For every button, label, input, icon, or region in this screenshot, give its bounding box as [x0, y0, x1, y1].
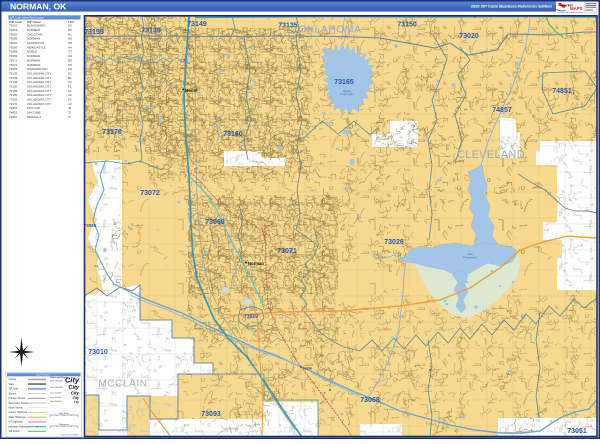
svg-text:Draper Lake: Draper Lake — [340, 93, 354, 96]
svg-text:73135: 73135 — [278, 23, 298, 30]
svg-text:73170: 73170 — [102, 129, 122, 136]
svg-text:Over 50,000: Over 50,000 — [50, 392, 62, 395]
svg-text:Moore: Moore — [185, 88, 198, 93]
svg-text:73020: 73020 — [9, 32, 18, 36]
svg-text:Over 25,000: Over 25,000 — [50, 396, 62, 399]
svg-text:State Highways: State Highways — [9, 416, 26, 419]
svg-text:73165: 73165 — [9, 98, 18, 102]
svg-text:73160: 73160 — [223, 131, 243, 138]
svg-text:C8: C8 — [68, 67, 72, 71]
svg-text:I2: I2 — [68, 115, 71, 119]
svg-text:73019: 73019 — [244, 314, 258, 320]
svg-text:A6: A6 — [68, 24, 72, 28]
svg-text:Streets: Streets — [9, 392, 17, 395]
svg-text:Toll Roads: Toll Roads — [9, 430, 21, 433]
svg-text:73026: 73026 — [384, 239, 404, 246]
svg-text:73068: 73068 — [360, 397, 380, 404]
svg-text:73159: 73159 — [84, 29, 104, 36]
svg-text:H1: H1 — [68, 32, 72, 36]
svg-text:NORMAN: NORMAN — [27, 58, 40, 62]
svg-text:Primary Streets: Primary Streets — [9, 397, 26, 400]
svg-text:Over 100,000: Over 100,000 — [50, 386, 63, 389]
svg-text:74851: 74851 — [9, 106, 18, 110]
svg-text:Copyright MarketMAPS: Copyright MarketMAPS — [60, 434, 80, 437]
svg-text:73149: 73149 — [187, 21, 207, 28]
svg-text:Norman: Norman — [248, 261, 264, 266]
svg-text:CLEVELAND: CLEVELAND — [457, 149, 525, 161]
svg-text:2020 ZIP Code Business Referen: 2020 ZIP Code Business Reference Edition — [471, 4, 553, 9]
svg-text:Over 250,000: Over 250,000 — [50, 380, 63, 383]
svg-text:73051: 73051 — [9, 41, 18, 45]
svg-text:74851: 74851 — [552, 88, 572, 95]
svg-text:Noble: Noble — [303, 366, 312, 370]
svg-text:F2: F2 — [68, 98, 72, 102]
svg-text:MAPS: MAPS — [570, 6, 583, 11]
svg-text:County: County — [9, 378, 17, 381]
svg-text:City: City — [73, 396, 81, 400]
svg-text:73165: 73165 — [334, 79, 354, 86]
svg-text:73051: 73051 — [567, 428, 587, 435]
svg-text:73010: 73010 — [88, 349, 108, 356]
svg-text:73093: 73093 — [9, 67, 18, 71]
svg-text:City: City — [71, 391, 80, 396]
svg-text:MCLOUD: MCLOUD — [27, 106, 41, 110]
svg-text:G7: G7 — [68, 50, 72, 54]
svg-text:73068: 73068 — [9, 50, 18, 54]
svg-text:NOBLE: NOBLE — [27, 50, 37, 54]
svg-text:ZIP Code Index/Grid Locator: ZIP Code Index/Grid Locator — [10, 16, 44, 20]
svg-text:73072: 73072 — [140, 190, 160, 197]
svg-text:73150: 73150 — [397, 22, 417, 29]
svg-text:ZIP Code: ZIP Code — [9, 388, 20, 391]
svg-text:Interstate Highways: Interstate Highways — [9, 425, 31, 428]
svg-text:City: City — [65, 376, 80, 385]
svg-text:73020: 73020 — [459, 33, 479, 40]
svg-text:Thunderbird: Thunderbird — [463, 255, 478, 259]
svg-text:Map Scale: Map Scale — [59, 413, 69, 415]
svg-text:Over 10,000: Over 10,000 — [50, 400, 62, 403]
svg-text:CHOCTAW: CHOCTAW — [27, 32, 42, 36]
svg-text:BLANCHARD: BLANCHARD — [27, 24, 46, 28]
svg-text:US Highways: US Highways — [9, 421, 24, 424]
svg-text:74857: 74857 — [9, 115, 18, 119]
svg-text:WASHINGTON: WASHINGTON — [27, 67, 48, 71]
svg-text:73065: 73065 — [84, 223, 97, 228]
svg-text:H8: H8 — [68, 41, 72, 45]
svg-text:OKLAHOMA CITY: OKLAHOMA CITY — [27, 89, 52, 93]
svg-text:OKLAHOMA: OKLAHOMA — [299, 24, 362, 36]
svg-text:OKLAHOMA CITY: OKLAHOMA CITY — [27, 98, 52, 102]
svg-text:OKLAHOMA CITY: OKLAHOMA CITY — [27, 80, 52, 84]
svg-text:73071: 73071 — [277, 248, 297, 255]
svg-text:MCCLAIN: MCCLAIN — [98, 379, 147, 390]
svg-text:NEWALLA: NEWALLA — [27, 115, 41, 119]
svg-text:73159: 73159 — [9, 89, 18, 93]
svg-text:State: State — [9, 383, 15, 386]
svg-text:LEXINGTON: LEXINGTON — [27, 41, 44, 45]
svg-text:NORMAN, OK: NORMAN, OK — [10, 1, 67, 11]
svg-text:Minor Streets: Minor Streets — [9, 407, 24, 410]
svg-text:73010: 73010 — [9, 24, 18, 28]
svg-text:73069: 73069 — [205, 219, 225, 226]
svg-text:73093: 73093 — [201, 411, 221, 418]
svg-text:D5: D5 — [68, 58, 72, 62]
svg-text:Kilometers: Kilometers — [59, 423, 68, 426]
svg-text:73139: 73139 — [141, 28, 161, 35]
svg-text:73071: 73071 — [9, 58, 18, 62]
svg-text:Map Features: Map Features — [36, 374, 50, 377]
svg-text:County Highways: County Highways — [9, 411, 28, 414]
svg-text:Secondary Streets: Secondary Streets — [9, 402, 29, 405]
svg-text:J2: J2 — [68, 106, 72, 110]
svg-text:A1: A1 — [68, 89, 72, 93]
svg-text:74857: 74857 — [492, 107, 512, 114]
svg-text:73149: 73149 — [9, 80, 18, 84]
svg-text:City: City — [74, 400, 80, 404]
svg-text:C1: C1 — [68, 80, 72, 84]
